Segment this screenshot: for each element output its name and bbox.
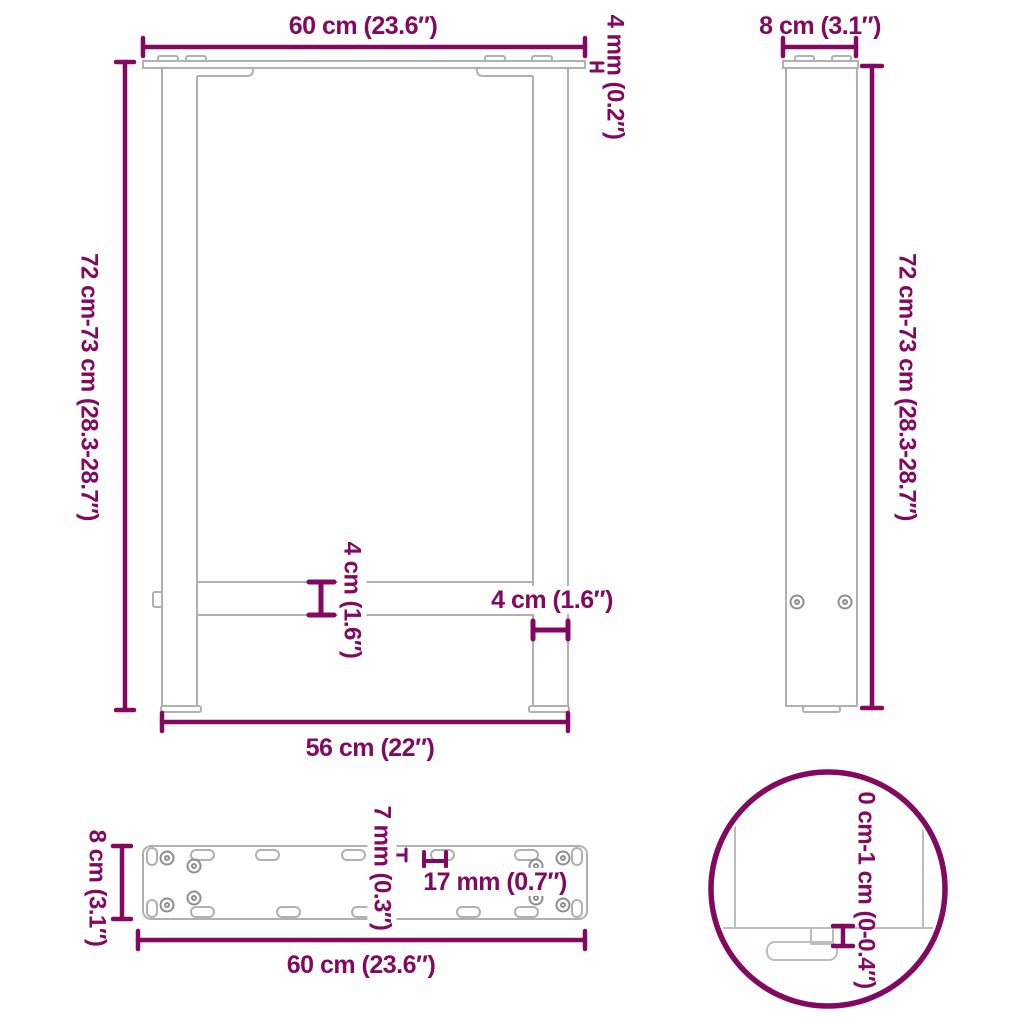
dimension-diagram: 60 cm (23.6″) 4 mm (0.2″) 72 cm-73 cm (2… <box>0 0 1024 1024</box>
side-view-screws <box>791 596 852 609</box>
dim-front-bottom-width: 56 cm (22″) <box>306 735 435 761</box>
dim-front-leg-width: 4 cm (1.6″) <box>489 586 615 614</box>
dim-plate-hole-length: 17 mm (0.7″) <box>421 868 569 896</box>
dim-side-depth: 8 cm (3.1″) <box>759 13 881 39</box>
dim-plate-hole-width: 7 mm (0.3″) <box>367 805 396 932</box>
dim-front-crossbar-thickness: 4 cm (1.6″) <box>337 541 366 660</box>
side-view-structure <box>783 56 858 712</box>
dim-plate-width: 60 cm (23.6″) <box>287 952 436 978</box>
dim-front-top-width: 60 cm (23.6″) <box>289 13 438 39</box>
dim-front-plate-thickness: 4 mm (0.2″) <box>602 15 627 140</box>
dim-side-height-range: 72 cm-73 cm (28.3-28.7″) <box>894 253 919 521</box>
dim-plate-depth: 8 cm (3.1″) <box>84 830 109 947</box>
dim-front-height-range: 72 cm-73 cm (28.3-28.7″) <box>76 253 101 521</box>
dim-detail-adjustment-range: 0 cm-1 cm (0-0.4″) <box>853 791 878 988</box>
